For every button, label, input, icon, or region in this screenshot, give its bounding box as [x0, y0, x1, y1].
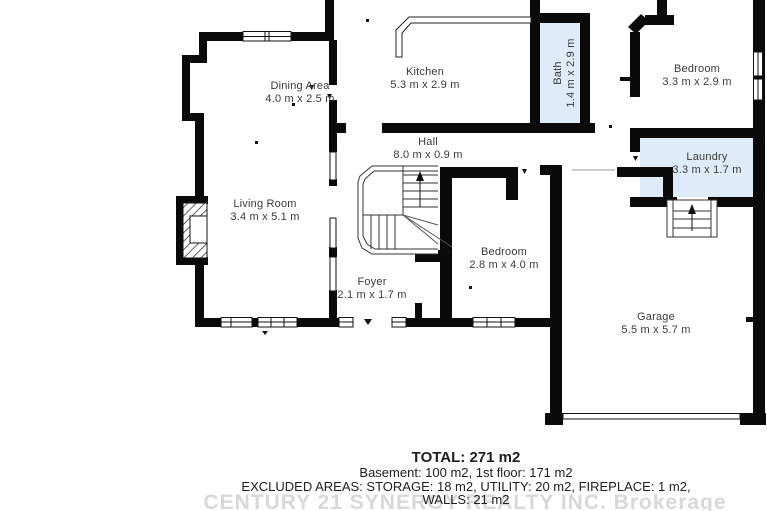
garage-door [563, 414, 740, 420]
room-dimensions: 4.0 m x 2.5 m [240, 93, 360, 106]
room-label-hall: Hall 8.0 m x 0.9 m [368, 136, 488, 162]
room-name: Living Room [205, 198, 325, 211]
room-label-garage: Garage 5.5 m x 5.7 m [596, 311, 716, 337]
room-name: Laundry [647, 151, 767, 164]
laundry-staircase [667, 200, 717, 237]
room-name: Bedroom [444, 246, 564, 259]
room-name: Kitchen [365, 66, 485, 79]
bedroom-window [473, 318, 515, 328]
room-name: Foyer [312, 276, 432, 289]
main-staircase [358, 166, 452, 254]
room-label-bedroom-mid: Bedroom 2.8 m x 4.0 m [444, 246, 564, 272]
room-label-dining: Dining Area 4.0 m x 2.5 m [240, 80, 360, 106]
living-room-windows [221, 318, 297, 328]
room-dimensions: 8.0 m x 0.9 m [368, 149, 488, 162]
kitchen-counter [396, 17, 531, 57]
room-label-living-room: Living Room 3.4 m x 5.1 m [205, 198, 325, 224]
room-label-kitchen: Kitchen 5.3 m x 2.9 m [365, 66, 485, 92]
room-dimensions: 5.3 m x 2.9 m [365, 79, 485, 92]
room-dimensions: 3.3 m x 1.7 m [647, 164, 767, 177]
room-dimensions: 1.4 m x 2.9 m [565, 25, 578, 121]
room-dimensions: 2.1 m x 1.7 m [312, 289, 432, 302]
fireplace [183, 203, 207, 258]
room-name: Hall [368, 136, 488, 149]
room-dimensions: 3.4 m x 5.1 m [205, 211, 325, 224]
cased-openings [330, 152, 336, 291]
room-dimensions: 3.3 m x 2.9 m [637, 76, 757, 89]
room-label-bath: Bath 1.4 m x 2.9 m [552, 25, 578, 121]
room-name: Dining Area [240, 80, 360, 93]
area-summary: TOTAL: 271 m2 Basement: 100 m2, 1st floo… [166, 450, 766, 507]
room-label-laundry: Laundry 3.3 m x 1.7 m [647, 151, 767, 177]
room-name: Garage [596, 311, 716, 324]
room-dimensions: 2.8 m x 4.0 m [444, 259, 564, 272]
room-name: Bath [552, 25, 565, 121]
room-label-foyer: Foyer 2.1 m x 1.7 m [312, 276, 432, 302]
walls-area: WALLS: 21 m2 [166, 494, 766, 507]
total-area: TOTAL: 271 m2 [166, 450, 766, 465]
room-name: Bedroom [637, 63, 757, 76]
room-label-bedroom-top: Bedroom 3.3 m x 2.9 m [637, 63, 757, 89]
foyer-windows [339, 318, 406, 328]
floor-areas: Basement: 100 m2, 1st floor: 171 m2 [166, 467, 766, 480]
dining-window [243, 32, 291, 42]
room-dimensions: 5.5 m x 5.7 m [596, 324, 716, 337]
floor-plan-page: Dining Area 4.0 m x 2.5 m Kitchen 5.3 m … [0, 0, 767, 511]
